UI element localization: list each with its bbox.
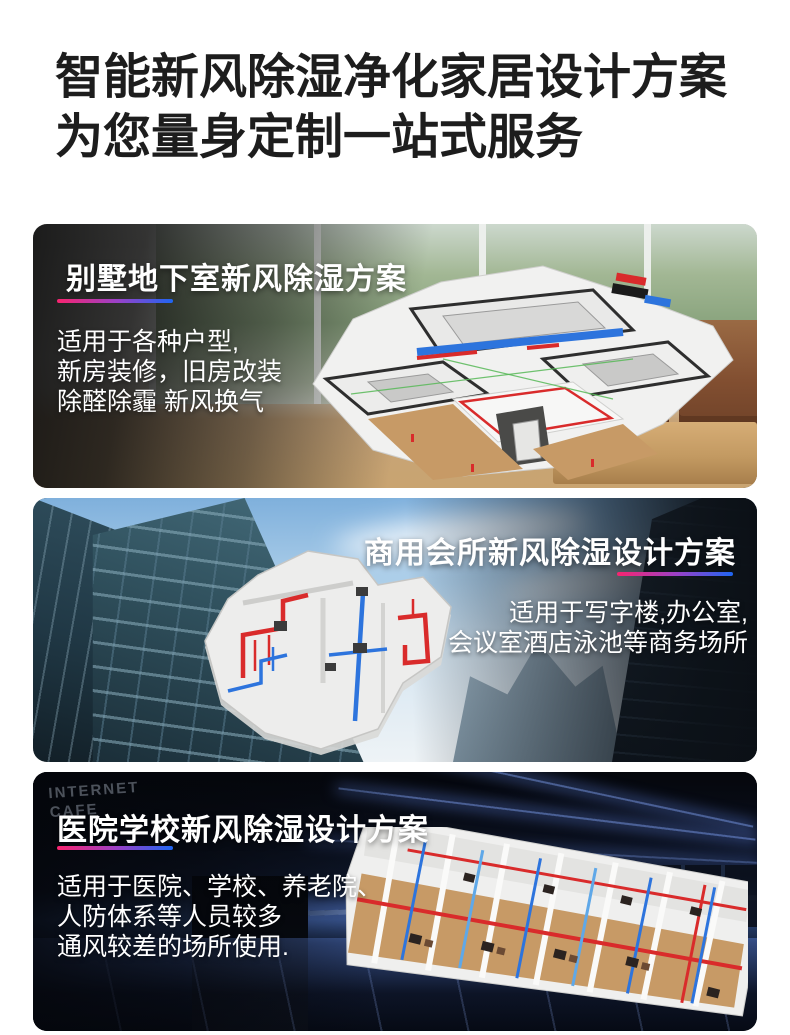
card1-description-line: 适用于各种户型, [57, 327, 282, 357]
page-title-line2: 为您量身定制一站式服务 [55, 108, 727, 168]
page-title: 智能新风除湿净化家居设计方案 为您量身定制一站式服务 [55, 48, 727, 168]
card1-description-line: 除醛除霾 新风换气 [57, 387, 282, 417]
card-hospital-school: INTERNET CAFE [33, 772, 757, 1031]
card3-title: 医院学校新风除湿设计方案 [57, 805, 429, 849]
card2-title-underline [617, 572, 733, 576]
card2-description-line: 适用于写字楼,办公室, [448, 598, 748, 628]
card3-description-line: 通风较差的场所使用. [57, 932, 382, 962]
card3-description: 适用于医院、学校、养老院、 人防体系等人员较多 通风较差的场所使用. [57, 872, 382, 962]
floorplan-hospital-graphic [338, 827, 748, 1027]
card1-title: 别墅地下室新风除湿方案 [66, 254, 407, 298]
card3-description-line: 适用于医院、学校、养老院、 [57, 872, 382, 902]
promo-page: { "header": { "line1": "智能新风除湿净化家居设计方案",… [0, 0, 790, 1035]
card-commercial-club: 商用会所新风除湿设计方案 适用于写字楼,办公室, 会议室酒店泳池等商务场所 [33, 498, 757, 762]
card3-title-underline [57, 846, 173, 850]
floorplan-club-graphic [173, 543, 483, 757]
card1-description-line: 新房装修，旧房改装 [57, 357, 282, 387]
page-title-line1: 智能新风除湿净化家居设计方案 [55, 48, 727, 108]
card-villa-basement: 别墅地下室新风除湿方案 适用于各种户型, 新房装修，旧房改装 除醛除霾 新风换气 [33, 224, 757, 488]
card1-description: 适用于各种户型, 新房装修，旧房改装 除醛除霾 新风换气 [57, 327, 282, 417]
card2-description: 适用于写字楼,办公室, 会议室酒店泳池等商务场所 [448, 598, 748, 658]
card2-description-line: 会议室酒店泳池等商务场所 [448, 628, 748, 658]
card2-title: 商用会所新风除湿设计方案 [364, 528, 736, 572]
card3-description-line: 人防体系等人员较多 [57, 902, 382, 932]
card1-title-underline [57, 299, 173, 303]
